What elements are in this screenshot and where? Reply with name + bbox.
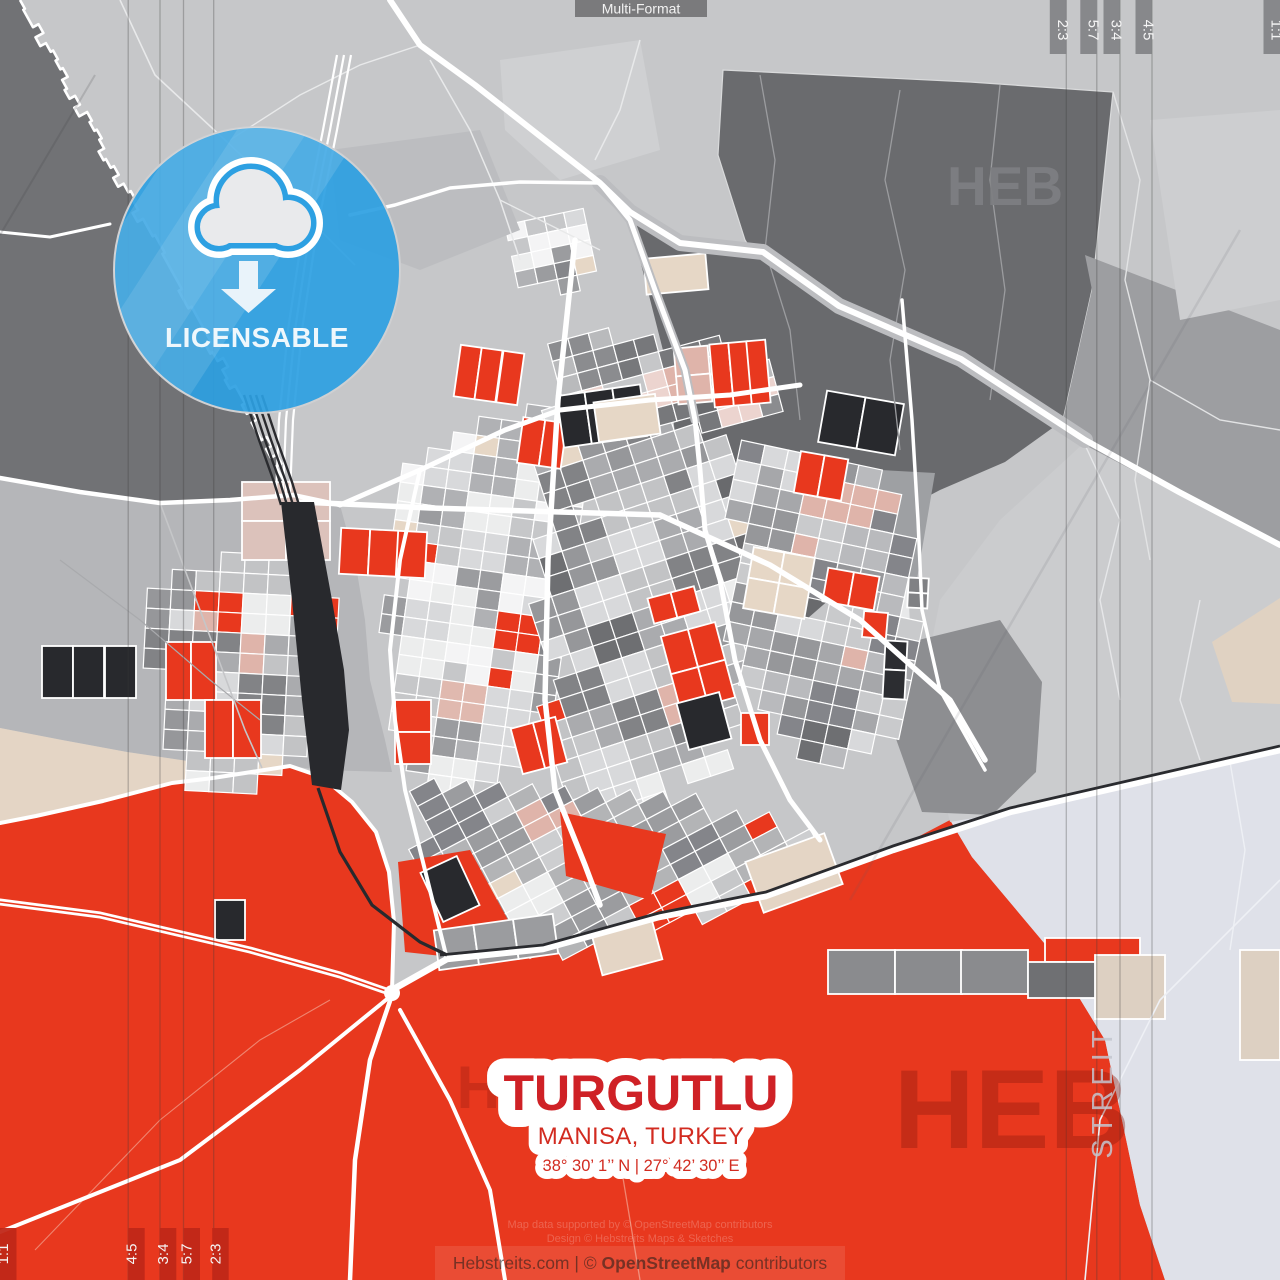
- svg-text:5:7: 5:7: [179, 1244, 196, 1265]
- svg-text:TURGUTLU: TURGUTLU: [504, 1065, 779, 1121]
- svg-text:HEB: HEB: [947, 155, 1063, 217]
- svg-text:38° 30’ 1’’ N | 27° 42’: 38° 30’ 1’’ N | 27° 42’ 30’’ E: [543, 1157, 740, 1175]
- svg-text:2:3: 2:3: [207, 1244, 224, 1265]
- svg-text:1:1: 1:1: [1268, 20, 1280, 41]
- svg-text:1:1: 1:1: [0, 1244, 12, 1265]
- svg-text:Map data supported by © OpenSt: Map data supported by © OpenStreetMap co…: [508, 1219, 773, 1231]
- svg-text:Hebstreits.com | © OpenStreetM: Hebstreits.com | © OpenStreetMap contrib…: [453, 1253, 828, 1273]
- svg-text:3:4: 3:4: [1108, 20, 1125, 41]
- svg-text:Design © Hebstreits Maps & Ske: Design © Hebstreits Maps & Sketches: [547, 1233, 734, 1245]
- svg-text:MANISA, TURKEY: MANISA, TURKEY: [538, 1123, 744, 1150]
- svg-text:Multi-Format: Multi-Format: [602, 1, 681, 17]
- svg-text:STREIT: STREIT: [1087, 1025, 1119, 1158]
- svg-text:2:3: 2:3: [1054, 20, 1071, 41]
- svg-text:3:4: 3:4: [155, 1244, 172, 1265]
- svg-text:4:5: 4:5: [123, 1244, 140, 1265]
- svg-text:LICENSABLE: LICENSABLE: [165, 322, 349, 353]
- svg-text:5:7: 5:7: [1085, 20, 1102, 41]
- svg-text:4:5: 4:5: [1140, 20, 1157, 41]
